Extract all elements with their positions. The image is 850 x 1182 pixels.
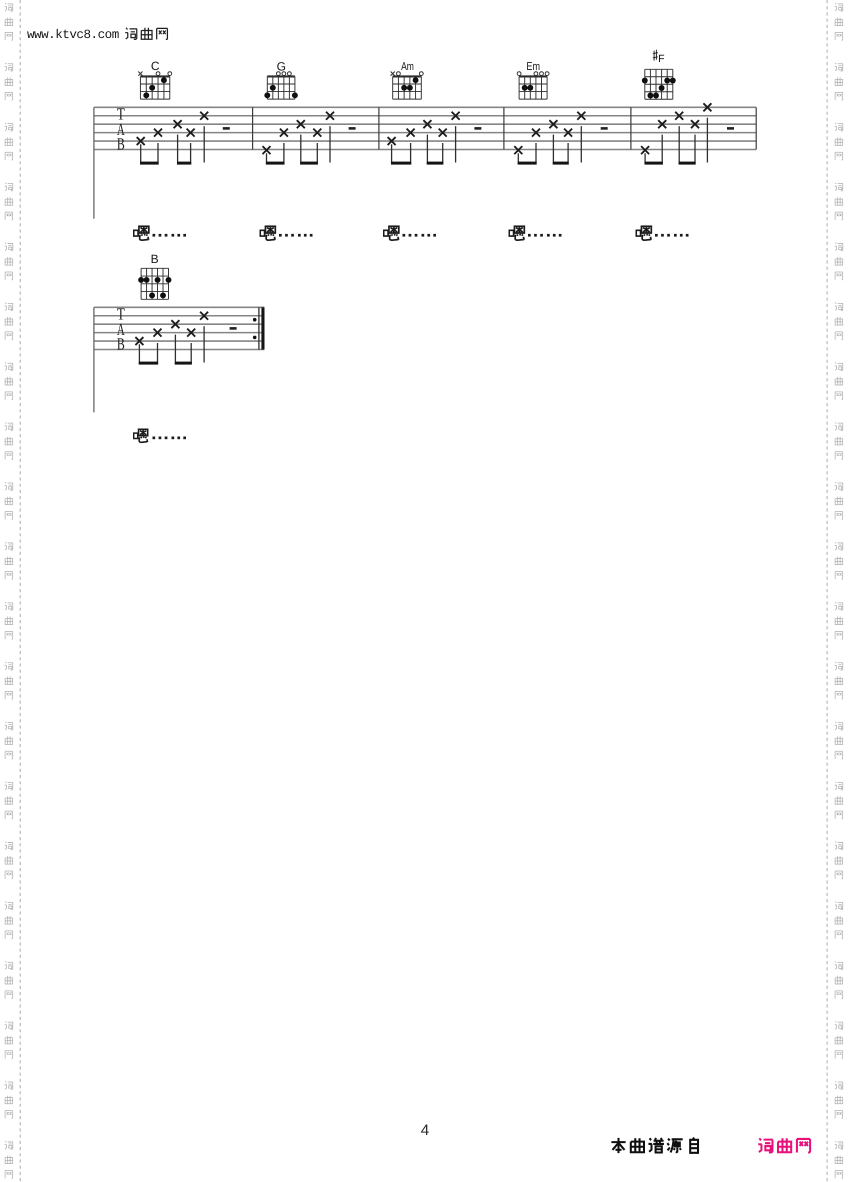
svg-text:4: 4 <box>421 1122 429 1139</box>
svg-text:www.ktvc8.com: www.ktvc8.com <box>27 28 119 42</box>
svg-text:Am: Am <box>401 61 414 73</box>
svg-text:B: B <box>151 252 159 266</box>
svg-text:Em: Em <box>526 61 540 73</box>
svg-text:B: B <box>117 335 125 354</box>
svg-text:B: B <box>117 135 125 154</box>
svg-text:F: F <box>658 53 664 65</box>
svg-text:C: C <box>151 59 160 73</box>
